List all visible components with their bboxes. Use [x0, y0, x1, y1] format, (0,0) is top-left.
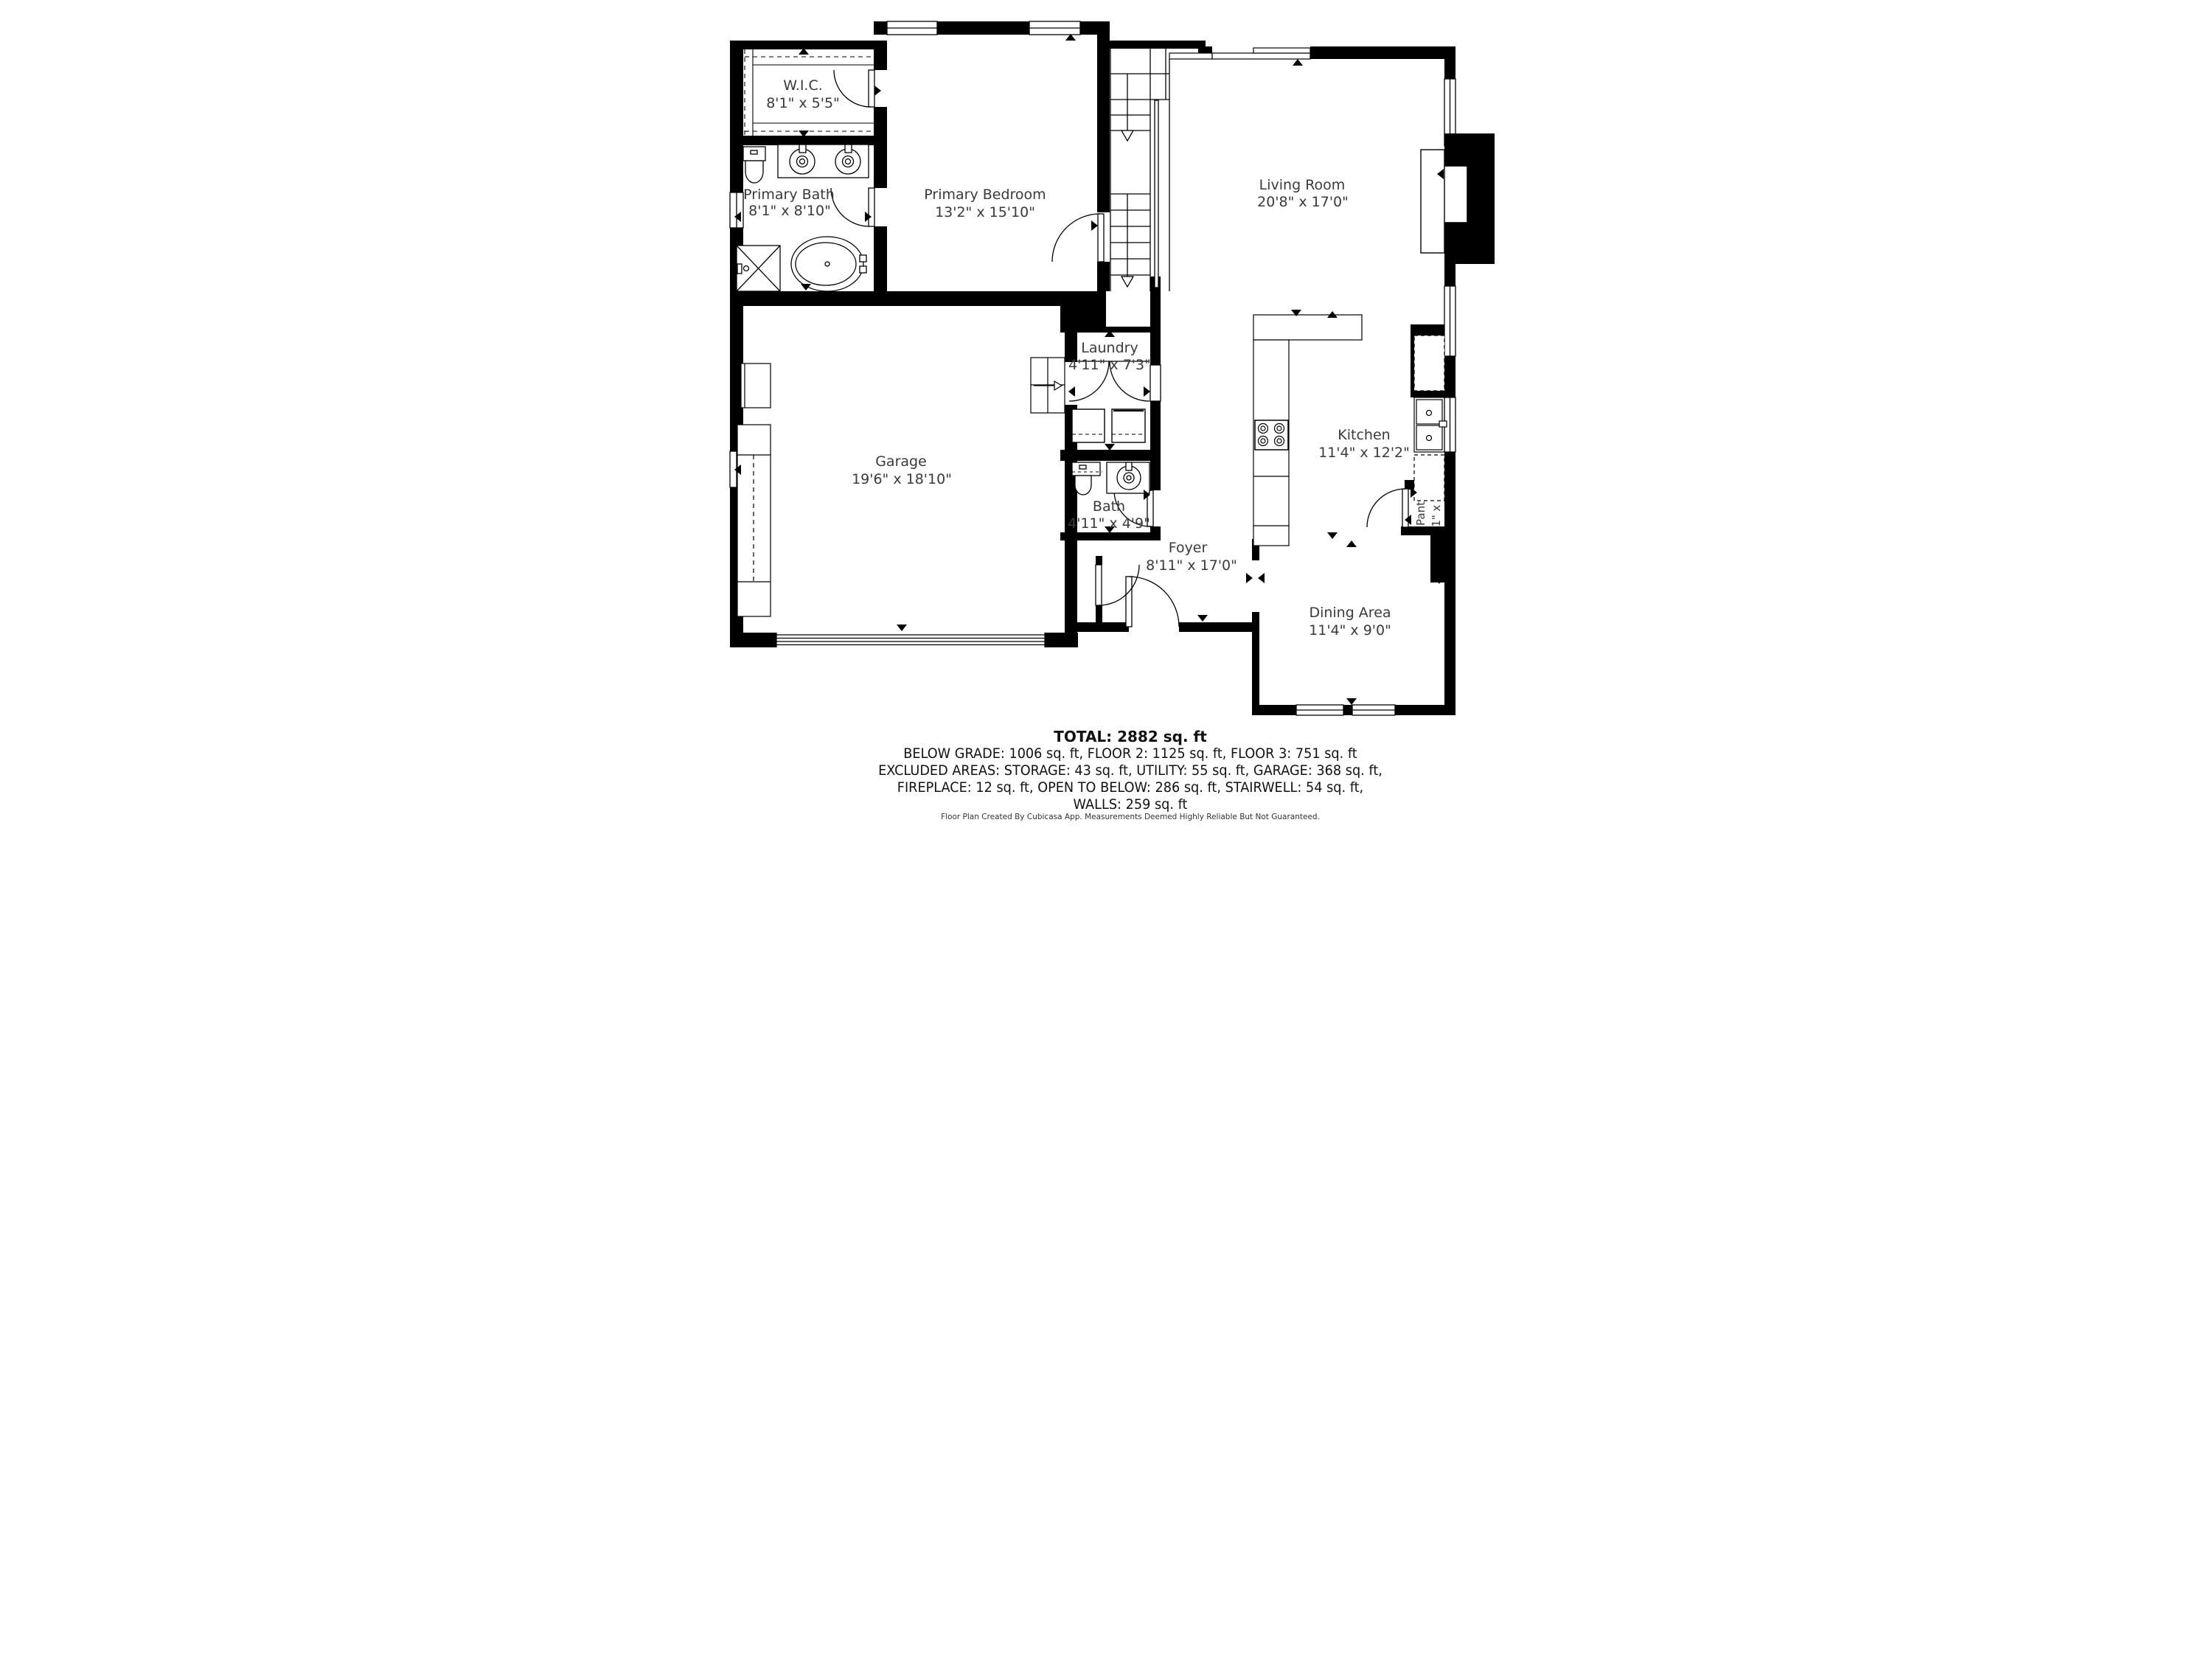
toilet-icon — [743, 147, 765, 183]
room-dims-kitchen: 11'4" x 12'2" — [1318, 445, 1410, 461]
floor-plan-drawing: Pantry 2'1" x 2'9" — [553, 0, 1659, 829]
summary-line-2: EXCLUDED AREAS: STORAGE: 43 sq. ft, UTIL… — [639, 762, 1622, 779]
door-primary-bedroom — [1052, 214, 1104, 262]
laundry-fixtures — [1072, 409, 1145, 442]
wall-bath-bottom — [1060, 532, 1161, 540]
room-label-foyer: Foyer — [1169, 540, 1208, 556]
door-wic — [834, 70, 874, 107]
stair-railing — [1155, 100, 1158, 288]
door-primary-bath — [831, 188, 874, 226]
room-dims-primary-bath: 8'1" x 8'10" — [748, 203, 831, 219]
sink-icon — [1107, 462, 1150, 493]
stove-icon — [1255, 420, 1288, 450]
window-dining-1 — [1296, 705, 1343, 715]
wall-closet-stub-a — [1096, 556, 1102, 565]
room-label-primary-bath: Primary Bath — [743, 187, 835, 203]
room-label-laundry: Laundry — [1081, 340, 1138, 356]
door-foyer-closet — [1096, 565, 1139, 605]
room-dims-wic: 8'1" x 5'5" — [766, 95, 840, 111]
kitchen-counter-top — [1253, 315, 1362, 340]
wall-closet-stub-b — [1096, 605, 1102, 622]
kitchen-sink-icon — [1414, 397, 1447, 452]
room-dims-bath: 4'11" x 4'9" — [1068, 515, 1150, 532]
fireplace-hearth — [1421, 150, 1444, 253]
floor-plan: Pantry 2'1" x 2'9" — [553, 0, 1659, 829]
door-pantry — [1367, 489, 1408, 527]
room-dims-garage: 19'6" x 18'10" — [852, 471, 952, 487]
window-living-right-2 — [1444, 286, 1455, 356]
summary-line-3: FIREPLACE: 12 sq. ft, OPEN TO BELOW: 286… — [639, 779, 1622, 796]
wall-laundry-bottom — [1060, 450, 1161, 461]
window-bedroom-1 — [887, 21, 937, 35]
railing-open-to-below — [1169, 48, 1310, 59]
door-laundry-hall-panel — [1150, 365, 1161, 401]
garage-storage-lower — [737, 425, 771, 616]
wall-stair-top — [1099, 41, 1206, 49]
kitchen-cabinet-dashed-upper — [1414, 335, 1444, 391]
room-dims-laundry: 4'11" x 7'3" — [1068, 357, 1151, 373]
room-dims-living-room: 20'8" x 17'0" — [1257, 194, 1349, 210]
summary-line-4: WALLS: 259 sq. ft — [639, 796, 1622, 813]
double-vanity-icon — [778, 145, 869, 178]
window-dining-2 — [1352, 705, 1395, 715]
disclaimer: Floor Plan Created By Cubicasa App. Meas… — [602, 813, 1659, 821]
window-bedroom-2 — [1029, 21, 1080, 35]
wall-wic-top — [730, 41, 887, 49]
room-label-wic: W.I.C. — [783, 77, 823, 94]
wall-pantry-bottom — [1401, 526, 1455, 535]
wall-living-top — [1310, 46, 1455, 59]
room-label-kitchen: Kitchen — [1338, 427, 1390, 443]
washer-icon — [1072, 409, 1105, 442]
room-dims-primary-bedroom: 13'2" x 15'10" — [935, 204, 1035, 220]
room-label-primary-bedroom: Primary Bedroom — [924, 187, 1046, 203]
kitchen-cabinet-dashed-lower — [1414, 455, 1444, 501]
bath-fixtures — [1072, 462, 1150, 495]
wall-block-bottom — [730, 291, 1078, 306]
shower-icon — [737, 246, 780, 291]
toilet-icon-2 — [1072, 462, 1102, 495]
area-summary: TOTAL: 2882 sq. ft BELOW GRADE: 1006 sq.… — [602, 728, 1659, 813]
room-dims-foyer: 8'11" x 17'0" — [1146, 557, 1237, 574]
garage-storage-upper — [741, 364, 771, 408]
room-dims-dining: 11'4" x 9'0" — [1309, 622, 1391, 639]
summary-line-1: BELOW GRADE: 1006 sq. ft, FLOOR 2: 1125 … — [639, 745, 1622, 762]
wall-pantry-chunk — [1430, 535, 1455, 582]
wall-wic-bath-divider — [743, 136, 874, 145]
window-primary-bath — [730, 192, 743, 228]
bathtub-icon — [791, 237, 866, 291]
garage-steps — [1031, 358, 1065, 413]
total-area: TOTAL: 2882 sq. ft — [602, 728, 1659, 745]
room-label-dining: Dining Area — [1309, 605, 1391, 621]
staircase — [1110, 49, 1169, 291]
room-label-bath: Bath — [1093, 498, 1125, 515]
stair-down-arrow-upper — [1121, 131, 1133, 141]
stair-down-arrow-lower — [1121, 276, 1133, 287]
fireplace — [1421, 133, 1495, 264]
room-label-living-room: Living Room — [1259, 177, 1346, 193]
room-label-garage: Garage — [875, 453, 927, 470]
dryer-icon — [1112, 409, 1145, 442]
